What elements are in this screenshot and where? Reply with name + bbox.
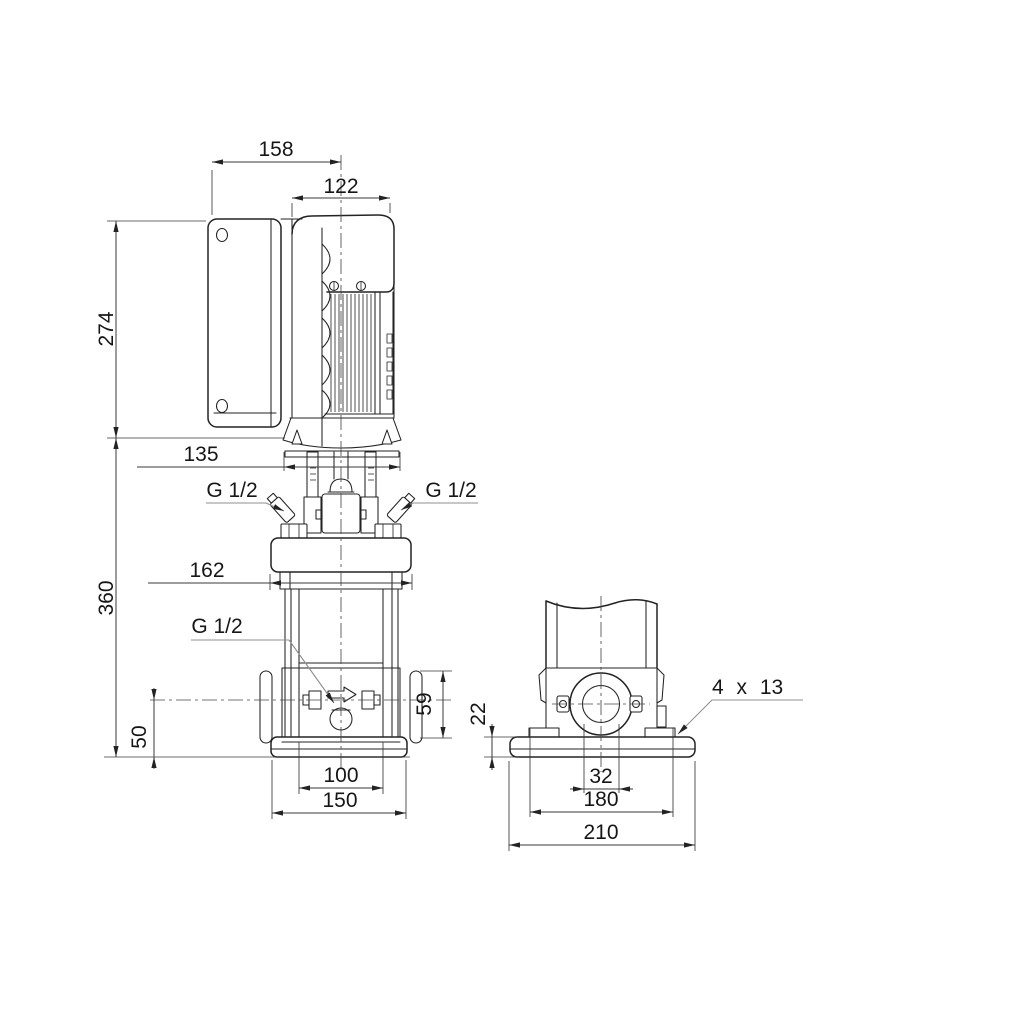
label-mounting-holes: 4 x 13 [712,676,783,699]
ext-135 [284,452,400,471]
side-lug [657,706,666,727]
label-gauge-port-left: G 1/2 [206,479,257,502]
coupling-guard-left [307,452,318,497]
technical-drawing: 158 122 274 135 G 1/2 G 1/2 360 162 G 1/… [0,0,1024,1024]
dim-label-chamber-diameter: 100 [323,764,358,787]
side-flange-left [260,671,272,743]
gauge-plug-left [266,492,296,523]
dim-label-flange-height: 59 [413,692,436,715]
motor-body-edges [290,283,394,418]
skirt-notches [292,430,392,444]
dim-label-base-height: 22 [467,702,490,725]
dim-label-motor-height: 274 [95,311,118,346]
foot-pad-right [645,728,675,737]
break-line [546,600,657,609]
dim-label-base-width: 150 [322,789,357,812]
foot-pad-left [529,728,559,737]
dim-label-head-width: 162 [189,559,224,582]
coupling-guard-slits [310,468,374,480]
head-block-left [280,572,290,589]
dimensions [104,162,803,851]
head-block-right [392,572,402,589]
side-body-outer [546,601,657,668]
control-box-screw-hole-top [217,229,228,242]
adapter-plate [285,451,399,457]
motor-vent-slots [387,334,392,399]
heatsink-panel [281,219,322,446]
dim-label-total-height: 360 [95,580,118,615]
side-view [510,600,695,757]
dim-label-port-bore: 32 [589,765,612,788]
dim-label-motor-width: 122 [323,175,358,198]
gauge-boss-left [281,524,307,538]
dim-label-total-width: 158 [258,138,293,161]
motor-top-cover [292,215,394,292]
ext-274 [107,221,285,438]
heatsink-fin-bumps [322,244,330,418]
motor-fins [331,294,371,412]
gauge-plug-right [387,492,417,523]
control-box-screw-hole-bottom [217,400,228,413]
side-base [510,737,695,757]
dim-label-bolt-hole-spacing: 180 [583,788,618,811]
label-gauge-port-right: G 1/2 [425,479,476,502]
front-base [271,737,407,757]
control-box-outline [208,219,281,427]
coupling-guard-right [365,452,376,497]
gauge-boss-right [375,524,401,538]
leader-g12-drain [289,640,334,703]
dim-label-base-depth: 210 [583,821,618,844]
dim-label-port-center-height: 50 [128,725,151,748]
dim-label-adapter-width: 135 [183,443,218,466]
label-drain-port: G 1/2 [191,615,242,638]
side-body-inner [557,601,646,668]
leader-holes [678,700,712,734]
drawing-canvas: 158 122 274 135 G 1/2 G 1/2 360 162 G 1/… [0,0,1024,1024]
